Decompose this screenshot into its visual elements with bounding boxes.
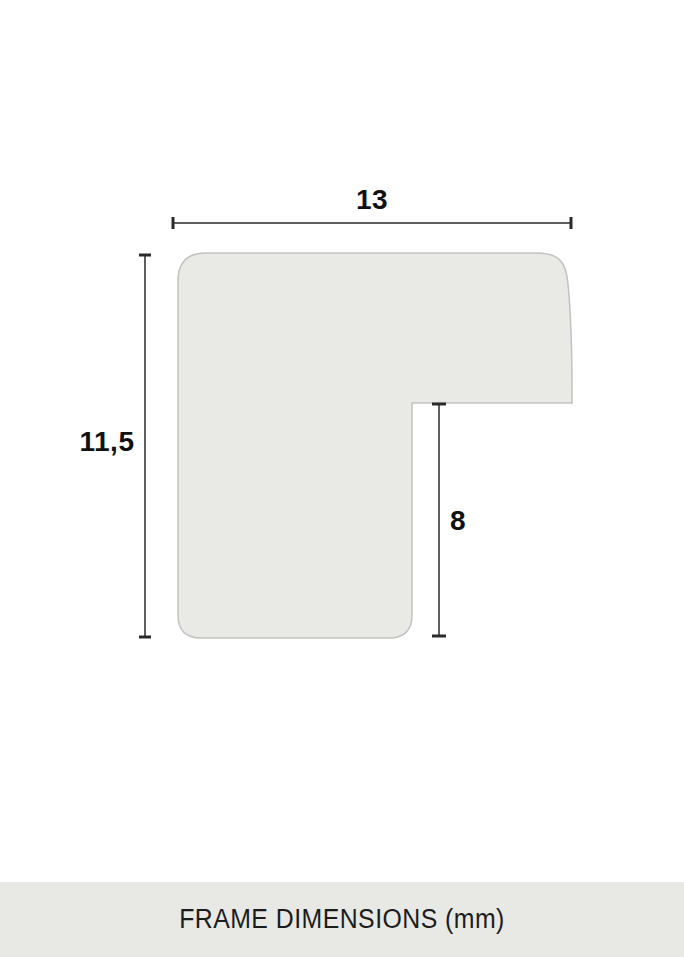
frame-profile-shape xyxy=(178,253,572,638)
frame-profile-diagram: 13 11,5 8 FRAME DIMENSIONS (mm) xyxy=(0,0,684,957)
rabbet-dimension-label: 8 xyxy=(450,507,466,535)
footer-caption-bar: FRAME DIMENSIONS (mm) xyxy=(0,882,684,957)
width-dimension-label: 13 xyxy=(356,186,388,214)
footer-caption-text: FRAME DIMENSIONS (mm) xyxy=(179,904,505,935)
rabbet-dimension-line xyxy=(432,404,446,636)
width-dimension-line xyxy=(173,217,571,229)
height-dimension-label: 11,5 xyxy=(80,428,135,456)
frame-profile-drawing xyxy=(0,0,684,957)
height-dimension-line xyxy=(139,255,151,637)
